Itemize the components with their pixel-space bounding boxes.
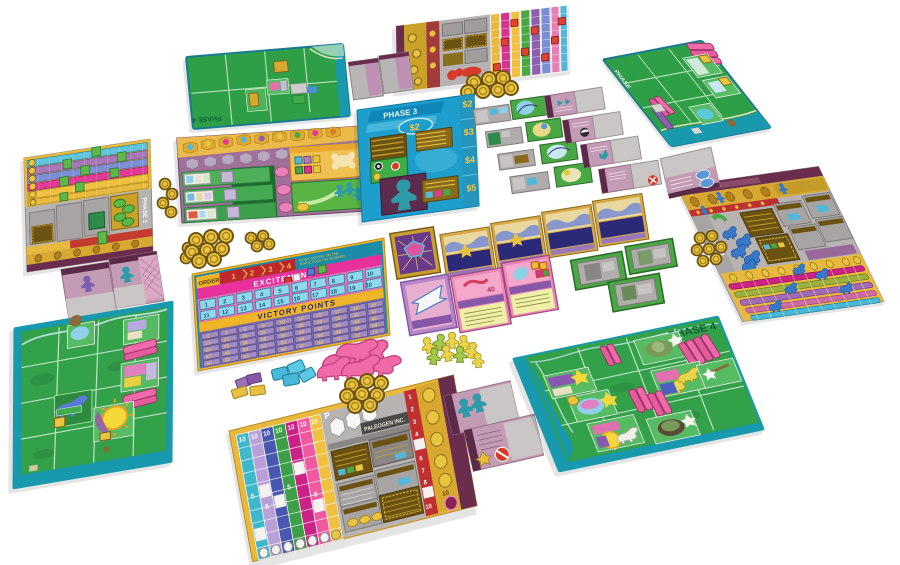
svg-text:$2: $2 <box>409 122 419 133</box>
svg-text:12: 12 <box>298 316 304 323</box>
svg-text:58: 58 <box>354 326 360 333</box>
svg-text:25: 25 <box>260 330 266 337</box>
svg-text:72: 72 <box>355 333 361 340</box>
svg-text:44: 44 <box>354 319 360 326</box>
svg-text:39: 39 <box>280 333 286 340</box>
svg-text:52: 52 <box>281 340 287 347</box>
svg-text:35: 35 <box>224 343 230 350</box>
svg-text:33: 33 <box>371 309 377 316</box>
svg-text:10: 10 <box>279 319 285 326</box>
svg-text:28: 28 <box>298 323 304 330</box>
svg-text:51: 51 <box>261 343 267 350</box>
svg-text:42: 42 <box>317 326 323 333</box>
svg-text:66: 66 <box>281 346 287 353</box>
svg-text:29: 29 <box>317 319 323 326</box>
svg-text:7: 7 <box>313 282 317 289</box>
svg-text:19: 19 <box>353 305 359 312</box>
svg-text:55: 55 <box>317 333 323 340</box>
svg-text:67: 67 <box>299 343 305 350</box>
svg-text:60: 60 <box>206 360 212 367</box>
svg-text:50: 50 <box>243 347 249 354</box>
svg-text:34: 34 <box>205 347 211 354</box>
svg-text:59: 59 <box>372 323 378 330</box>
svg-text:$5: $5 <box>466 182 476 193</box>
svg-text:43: 43 <box>335 322 341 329</box>
svg-text:62: 62 <box>225 357 231 364</box>
svg-text:24: 24 <box>242 333 248 340</box>
svg-text:64: 64 <box>262 350 268 357</box>
svg-text:15: 15 <box>316 312 322 319</box>
svg-text:40: 40 <box>299 329 305 336</box>
svg-text:70: 70 <box>336 336 342 343</box>
svg-text:48: 48 <box>224 350 230 357</box>
svg-text:$3: $3 <box>464 126 474 137</box>
svg-text:32: 32 <box>353 312 359 319</box>
svg-text:68: 68 <box>318 340 324 347</box>
svg-text:17: 17 <box>312 292 319 299</box>
svg-text:63: 63 <box>243 354 249 361</box>
svg-text:22: 22 <box>223 337 229 344</box>
svg-text:PHASE 1: PHASE 1 <box>141 197 148 224</box>
svg-text:$2: $2 <box>462 98 472 109</box>
svg-text:$4: $4 <box>465 154 475 165</box>
svg-text:47: 47 <box>206 354 212 361</box>
svg-text:20: 20 <box>370 302 376 309</box>
svg-text:38: 38 <box>261 336 267 343</box>
svg-text:11: 11 <box>203 313 210 320</box>
svg-text:21: 21 <box>205 340 211 347</box>
svg-text:46: 46 <box>371 316 377 323</box>
svg-text:54: 54 <box>299 336 305 343</box>
svg-text:40: 40 <box>487 286 496 294</box>
svg-text:73: 73 <box>372 329 378 336</box>
svg-text:17: 17 <box>335 309 341 316</box>
svg-text:30: 30 <box>335 316 341 323</box>
svg-text:36: 36 <box>242 340 248 347</box>
svg-text:56: 56 <box>336 329 342 336</box>
svg-text:26: 26 <box>280 326 286 333</box>
